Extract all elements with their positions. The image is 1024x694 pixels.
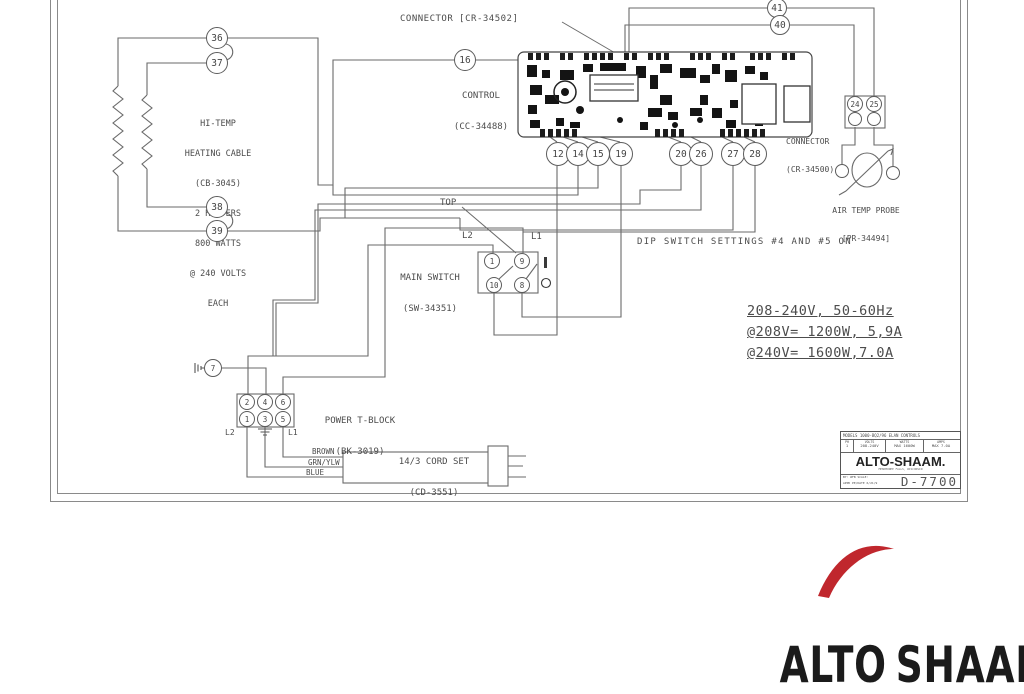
title-block: MODELS 1000-BQ2/96 ELAN CONTROLS PH 1 VO… <box>840 431 961 489</box>
terminal-10: 10 <box>486 277 502 293</box>
main-switch-label: MAIN SWITCH (SW-34351) <box>400 252 460 324</box>
terminal-9: 9 <box>514 253 530 269</box>
terminal-27: 27 <box>721 142 745 166</box>
terminal-25: 25 <box>866 96 882 112</box>
logo-swoosh-icon <box>816 540 896 598</box>
wire-color-brown: BROWN <box>312 448 335 457</box>
col-value-amps: MAX 7.0A <box>924 444 958 449</box>
terminal-8: 8 <box>514 277 530 293</box>
top-label: TOP <box>440 198 456 208</box>
appd-line: APPD PE/DATE 6/21/9 <box>843 482 877 486</box>
spec-line-2: @208V= 1200W, 5,9A <box>747 325 902 341</box>
title-block-ratings: PH 1 VOLTS 208-240V WATTS MAX 1600W AMPS… <box>841 440 960 453</box>
wire-color-grnylw: GRN/YLW <box>308 459 340 468</box>
terminal-15: 15 <box>586 142 610 166</box>
cord-label: 14/3 CORD SET (CD-3551) <box>399 436 469 508</box>
tblock-line1: POWER T-BLOCK <box>325 416 395 426</box>
terminal-40: 40 <box>770 15 790 35</box>
tblock-l1-label: L1 <box>288 428 298 437</box>
terminal-39: 39 <box>206 220 228 242</box>
control-label: CONTROL (CC-34488) <box>454 70 508 142</box>
terminal-36: 36 <box>206 27 228 49</box>
connector-top-label: CONNECTOR [CR-34502] <box>400 14 518 24</box>
terminal-6: 6 <box>275 394 291 410</box>
control-board <box>0 0 1024 600</box>
main-switch-line2: (SW-34351) <box>400 304 460 314</box>
switch-l1-label: L1 <box>531 232 542 242</box>
terminal-37: 37 <box>206 52 228 74</box>
heater-line: HEATING CABLE <box>185 149 252 159</box>
title-block-footer: BY: WFB SCALE: APPD PE/DATE 6/21/9 D-770… <box>841 475 960 488</box>
terminal-5: 5 <box>275 411 291 427</box>
wiring-diagram-page: { "diagram": { "connector_top_label": "C… <box>0 0 1024 600</box>
terminal-2: 2 <box>239 394 255 410</box>
cord-line1: 14/3 CORD SET <box>399 457 469 467</box>
logo-right: SHAAM <box>896 636 1024 694</box>
connector-right-label: CONNECTOR (CR-34500) <box>786 119 834 183</box>
terminal-38: 38 <box>206 196 228 218</box>
heater-line: EACH <box>185 299 252 309</box>
terminal-circle <box>886 166 900 180</box>
terminal-circle <box>848 112 862 126</box>
terminal-3: 3 <box>257 411 273 427</box>
tblock-label: POWER T-BLOCK (BK-3019) <box>325 395 395 467</box>
control-label-line2: (CC-34488) <box>454 122 508 132</box>
probe-label-line1: AIR TEMP PROBE <box>832 206 899 215</box>
drawing-number: D-7700 <box>901 474 958 489</box>
tblock-line2: (BK-3019) <box>325 447 395 457</box>
terminal-circle <box>867 112 881 126</box>
control-label-line1: CONTROL <box>454 91 508 101</box>
logo-left: ALT <box>780 636 855 694</box>
spec-line-3: @240V= 1600W,7.0A <box>747 346 894 362</box>
col-value-volts: 208-240V <box>854 444 885 449</box>
dip-switch-note: DIP SWITCH SETTINGS #4 AND #5 ON <box>637 237 852 247</box>
spec-line-1: 208-240V, 50-60Hz <box>747 304 894 320</box>
terminal-24: 24 <box>847 96 863 112</box>
connector-right-line2: (CR-34500) <box>786 165 834 174</box>
title-block-brand: ALTO-SHAAM. MENOMONEE FALLS, WISCONSIN <box>841 453 960 475</box>
terminal-4: 4 <box>257 394 273 410</box>
heater-line: HI-TEMP <box>185 119 252 129</box>
col-value-watts: MAX 1600W <box>886 444 923 449</box>
logo-o: O <box>854 636 887 694</box>
terminal-19: 19 <box>609 142 633 166</box>
terminal-7: 7 <box>204 359 222 377</box>
main-switch-line1: MAIN SWITCH <box>400 273 460 283</box>
heater-line: (CB-3045) <box>185 179 252 189</box>
terminal-1: 1 <box>239 411 255 427</box>
terminal-26: 26 <box>689 142 713 166</box>
heater-line: @ 240 VOLTS <box>185 269 252 279</box>
terminal-1: 1 <box>484 253 500 269</box>
tblock-l2-label: L2 <box>225 428 235 437</box>
title-block-models: MODELS 1000-BQ2/96 ELAN CONTROLS <box>841 432 960 440</box>
by-line: BY: WFB SCALE: <box>843 476 868 480</box>
col-value-ph: 1 <box>841 444 853 449</box>
terminal-28: 28 <box>743 142 767 166</box>
connector-right-line1: CONNECTOR <box>786 137 834 146</box>
switch-l2-label: L2 <box>462 231 473 241</box>
wire-color-blue: BLUE <box>306 469 324 478</box>
cord-line2: (CD-3551) <box>399 488 469 498</box>
terminal-circle <box>835 164 849 178</box>
terminal-16: 16 <box>454 49 476 71</box>
